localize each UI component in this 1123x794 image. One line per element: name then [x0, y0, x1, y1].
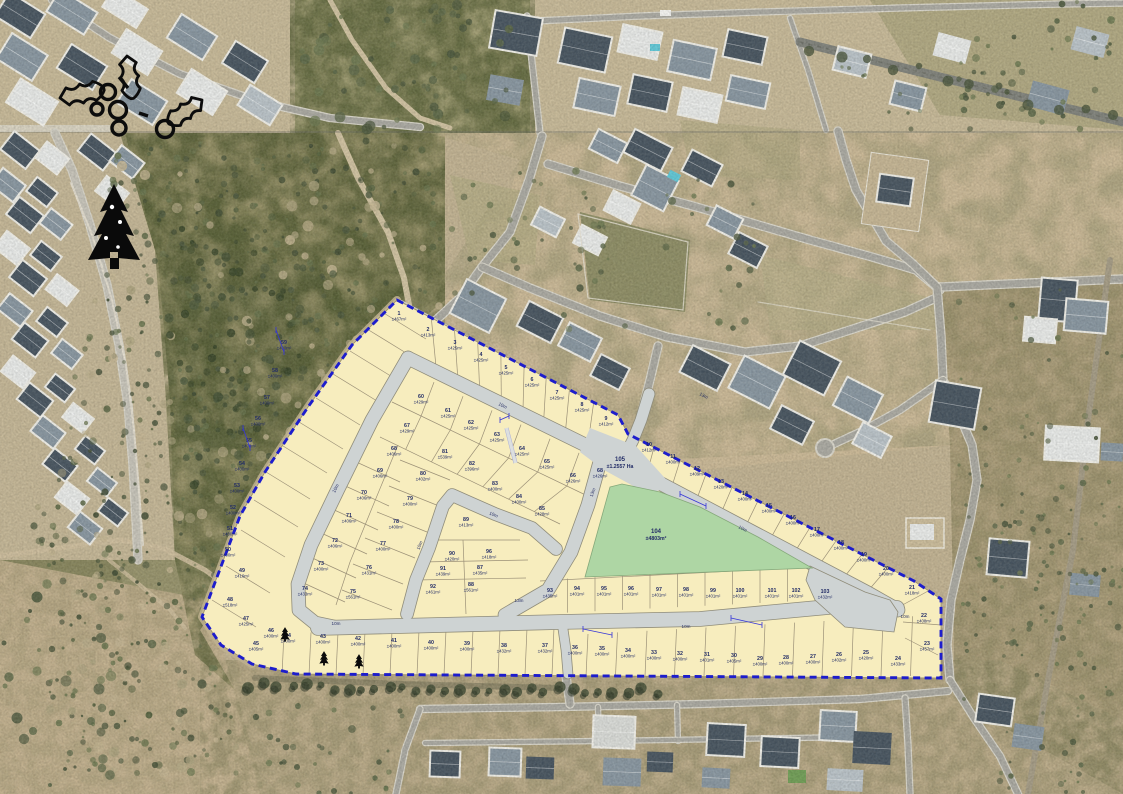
- svg-text:10m: 10m: [901, 614, 910, 619]
- svg-text:10m: 10m: [682, 624, 691, 629]
- svg-text:13m: 13m: [515, 598, 524, 603]
- svg-text:10m: 10m: [332, 621, 341, 626]
